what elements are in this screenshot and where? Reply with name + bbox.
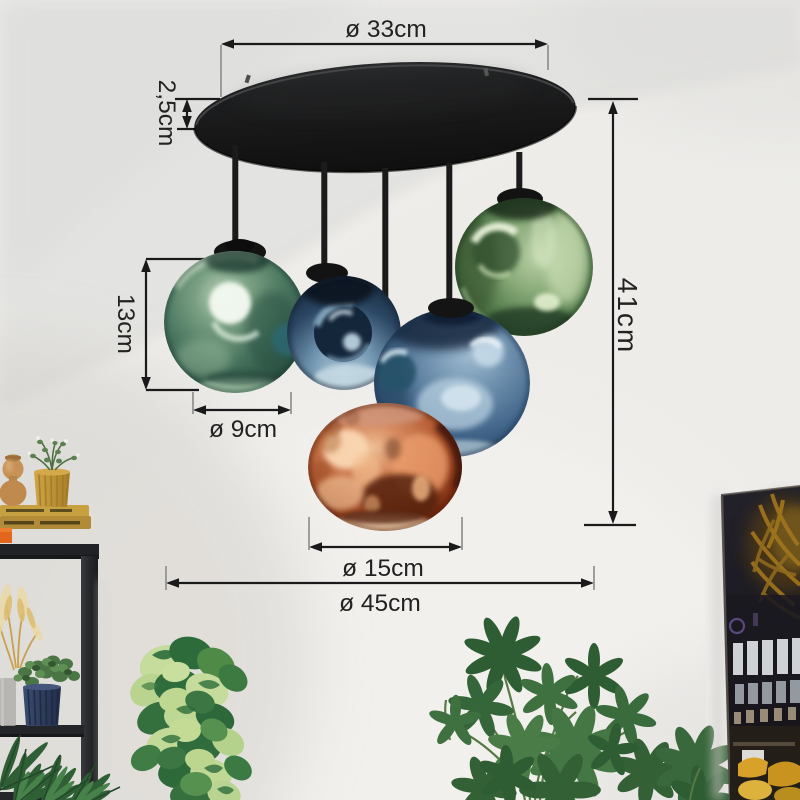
svg-text:ø 33cm: ø 33cm bbox=[345, 16, 427, 43]
svg-text:41cm: 41cm bbox=[612, 278, 643, 354]
svg-text:2,5cm: 2,5cm bbox=[153, 80, 180, 147]
svg-text:ø 15cm: ø 15cm bbox=[342, 555, 424, 582]
svg-text:13cm: 13cm bbox=[112, 294, 139, 354]
svg-text:ø 9cm: ø 9cm bbox=[209, 416, 277, 443]
svg-text:ø 45cm: ø 45cm bbox=[339, 590, 421, 617]
